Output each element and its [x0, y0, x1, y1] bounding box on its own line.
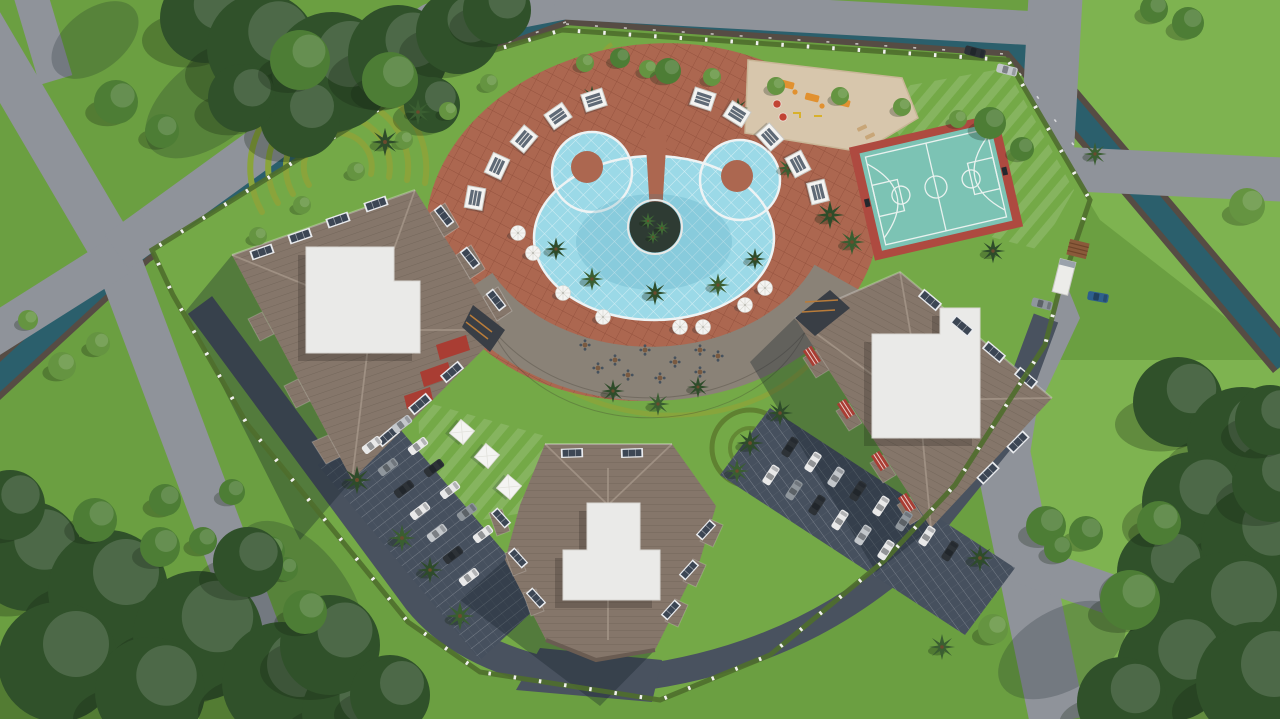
aerial-render-page: [0, 0, 1280, 719]
spinner-red: [779, 113, 787, 121]
spinner-red: [773, 100, 781, 108]
deck-islet-right: [721, 160, 753, 192]
cabana: [464, 186, 488, 213]
palm-island: [630, 202, 681, 253]
skylight: [621, 448, 643, 458]
play-dot: [792, 89, 797, 94]
road-east-arm: [1046, 168, 1280, 180]
deck-islet-left: [571, 151, 603, 183]
skylight: [561, 448, 583, 458]
play-dot: [819, 103, 824, 108]
aerial-render: [0, 0, 1280, 719]
